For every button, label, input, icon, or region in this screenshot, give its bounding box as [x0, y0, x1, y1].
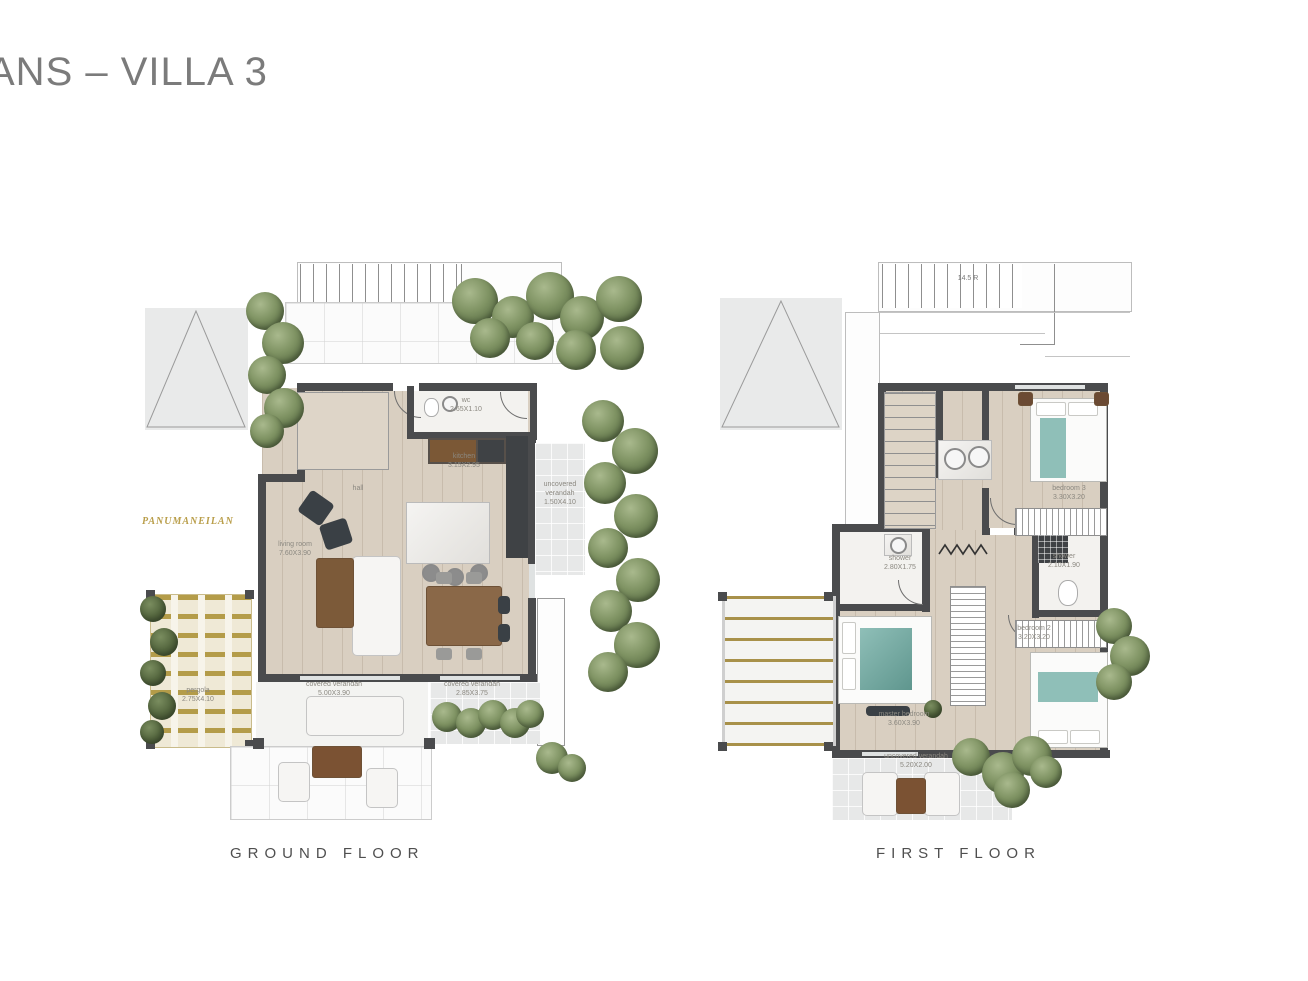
side-roof — [845, 312, 880, 532]
first-floor-plan: 14.5 R — [0, 0, 1308, 981]
door-gap — [990, 528, 1014, 535]
roof-line — [845, 312, 1130, 313]
basin-icon — [890, 537, 907, 554]
bed-runner — [1040, 418, 1066, 478]
window — [1015, 385, 1085, 389]
closet — [950, 586, 986, 706]
nightstand — [1018, 392, 1033, 406]
tree — [994, 772, 1030, 808]
tree — [1030, 756, 1062, 788]
bed-runner — [1038, 672, 1098, 702]
room-name: shower — [870, 554, 930, 563]
room-dims: 5.20X2.00 — [862, 761, 970, 770]
exterior-stairs — [882, 264, 1022, 308]
room-dims: 3.60X3.90 — [862, 719, 946, 728]
wc-pan-icon — [1058, 580, 1078, 606]
tree — [1096, 664, 1132, 700]
room-name: bedroom 2 — [1002, 624, 1066, 633]
outdoor-table — [896, 778, 926, 814]
pillow — [842, 658, 856, 690]
roof-plot — [720, 298, 842, 430]
pergola-post — [824, 592, 833, 601]
room-label-shower1: shower 2.80X1.75 — [870, 554, 930, 572]
room-dims: 3.20X3.20 — [1002, 633, 1066, 642]
outdoor-chair — [924, 772, 960, 816]
room-dims: 2.80X1.75 — [870, 563, 930, 572]
room-label-bedroom2: bedroom 2 3.20X3.20 — [1002, 624, 1066, 642]
room-name: uncovered verandah — [862, 752, 970, 761]
room-label-shower2: shower 2.10X1.90 — [1032, 552, 1096, 570]
room-dims: 2.10X1.90 — [1032, 561, 1096, 570]
washer-icon — [968, 446, 990, 468]
room-name: bedroom 3 — [1036, 484, 1102, 493]
wall — [832, 604, 930, 611]
pillow — [1070, 730, 1100, 744]
ground-floor-caption: GROUND FLOOR — [230, 845, 425, 862]
room-label-master: master bedroom 3.60X3.90 — [862, 710, 946, 728]
gable-roof-outline — [720, 298, 842, 430]
nightstand — [1094, 392, 1109, 406]
room-name: shower — [1032, 552, 1096, 561]
room-label-uncovered-verandah: uncovered verandah 5.20X2.00 — [862, 752, 970, 770]
room-label-bedroom3: bedroom 3 3.30X3.20 — [1036, 484, 1102, 502]
outdoor-chair — [862, 772, 898, 816]
wardrobe — [1015, 508, 1107, 536]
stair-note: 14.5 R — [948, 274, 988, 283]
pergola-post — [718, 592, 727, 601]
zigzag-symbol — [938, 542, 990, 558]
plan-sheet: ANS – VILLA 3 — [0, 0, 1308, 981]
pergola-post — [718, 742, 727, 751]
stairwell — [884, 392, 936, 529]
pillow — [842, 622, 856, 654]
washer-icon — [944, 448, 966, 470]
pergola-slats — [722, 596, 836, 746]
wall — [1032, 610, 1108, 617]
roof-line — [1045, 356, 1130, 357]
bed-throw — [860, 628, 912, 690]
pillow — [1036, 402, 1066, 416]
room-name: master bedroom — [862, 710, 946, 719]
pergola-post — [824, 742, 833, 751]
first-floor-caption: FIRST FLOOR — [876, 845, 1041, 862]
room-dims: 3.30X3.20 — [1036, 493, 1102, 502]
